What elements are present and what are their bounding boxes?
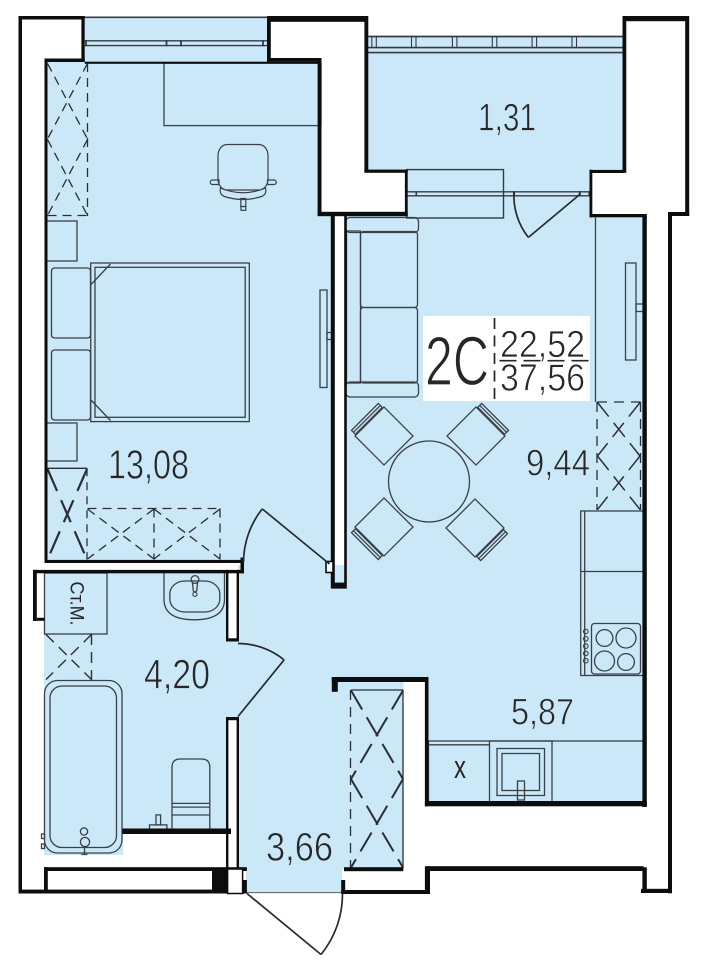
- svg-text:Ст.М.: Ст.М.: [66, 582, 87, 626]
- svg-text:13,08: 13,08: [108, 442, 189, 488]
- svg-text:4,20: 4,20: [144, 651, 210, 698]
- svg-text:37,56: 37,56: [500, 358, 585, 400]
- svg-text:1,31: 1,31: [478, 97, 536, 140]
- svg-text:9,44: 9,44: [526, 443, 590, 484]
- svg-text:х: х: [454, 749, 466, 785]
- svg-text:5,87: 5,87: [511, 692, 574, 733]
- svg-text:2С: 2С: [425, 322, 489, 400]
- svg-text:3,66: 3,66: [266, 826, 333, 870]
